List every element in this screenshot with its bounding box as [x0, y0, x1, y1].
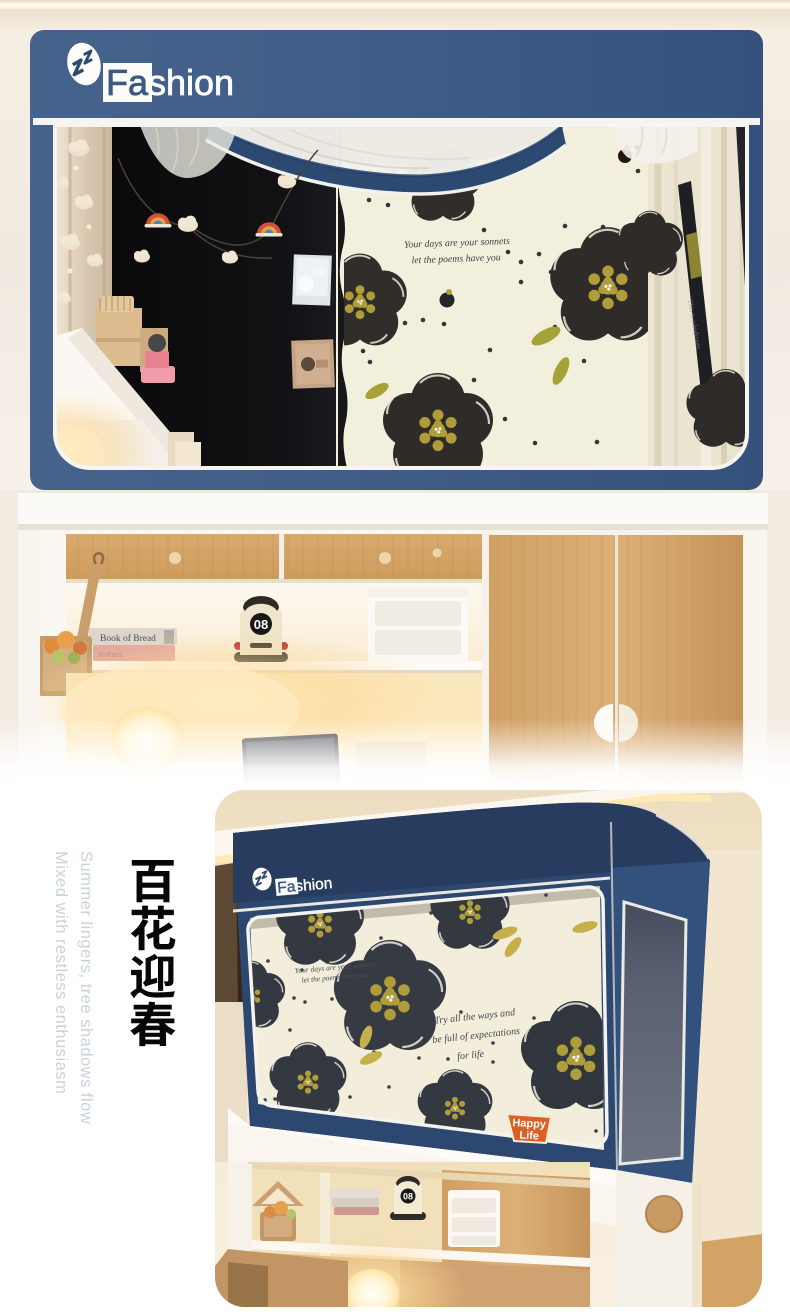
svg-text:Happy: Happy: [512, 1117, 547, 1131]
svg-text:Summer lingers, tree shadows: Summer lingers, tree shadows flow: [77, 851, 95, 1124]
svg-text:Life: Life: [519, 1130, 539, 1143]
svg-text:08: 08: [254, 617, 268, 632]
svg-text:08: 08: [403, 1192, 413, 1202]
svg-text:Fashion: Fashion: [106, 62, 234, 103]
svg-text:Mixed with restless enthusiasm: Mixed with restless enthusiasm: [52, 851, 70, 1094]
